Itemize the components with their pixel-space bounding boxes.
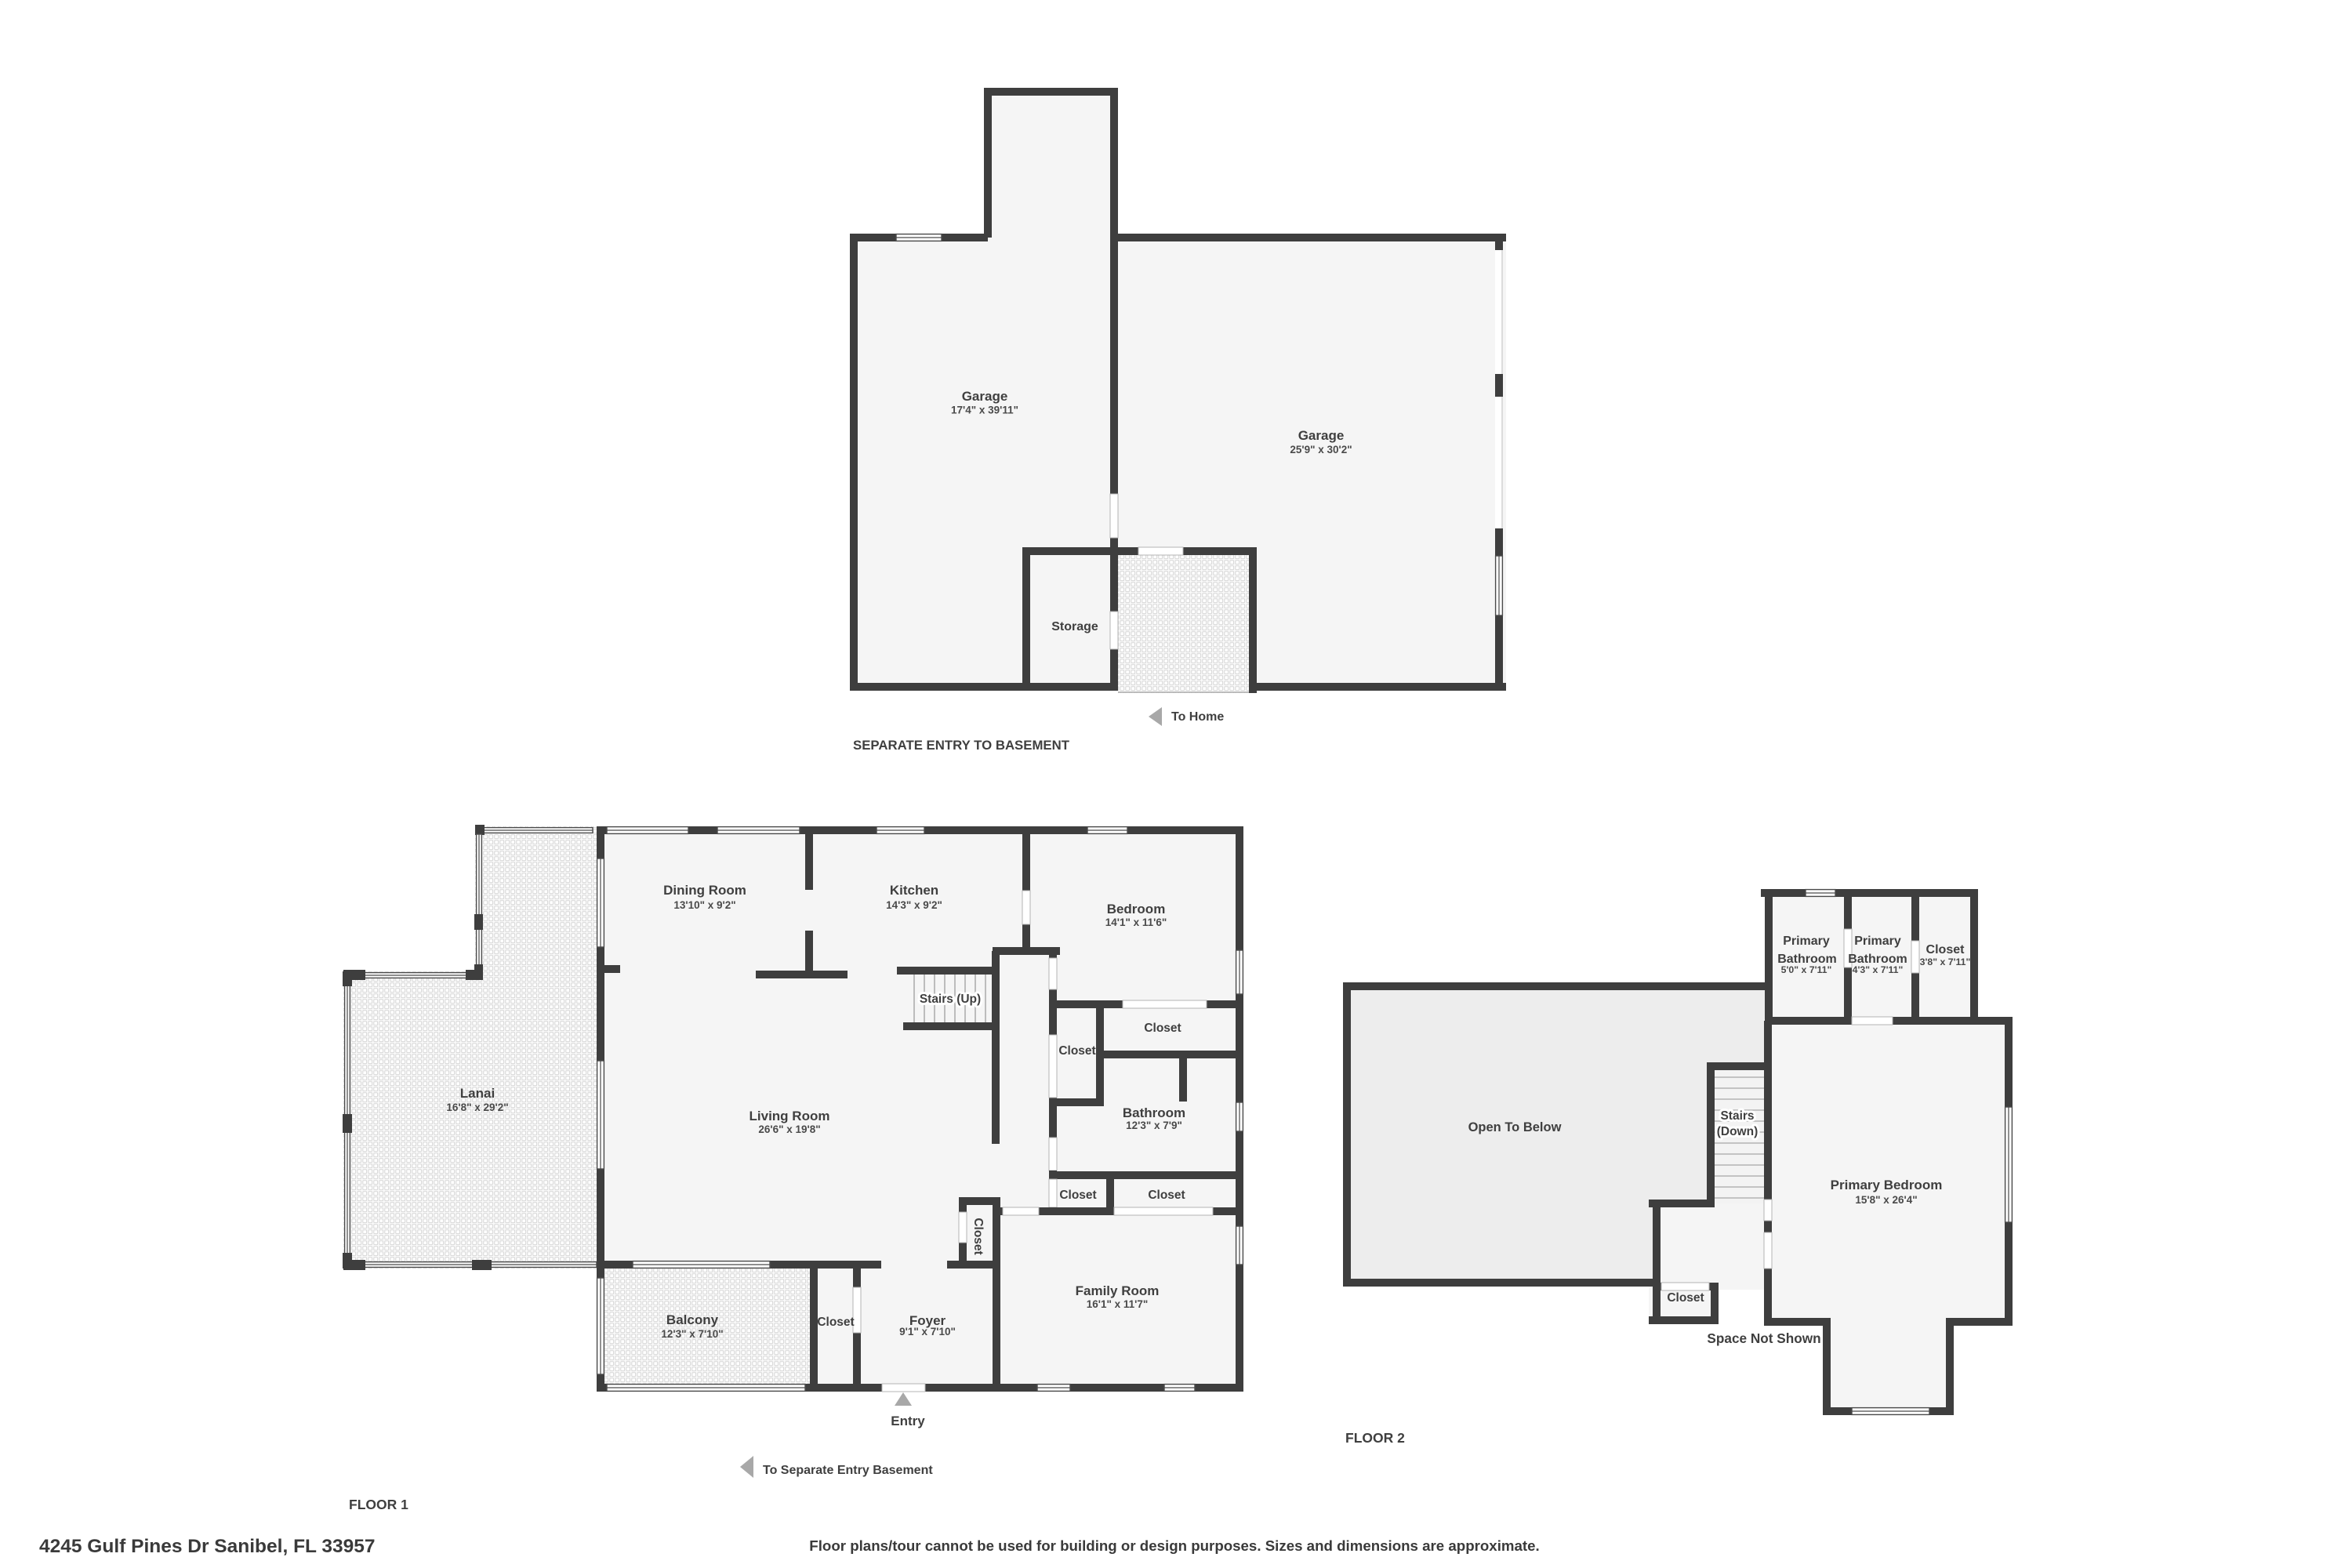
svg-text:Bathroom: Bathroom <box>1123 1105 1185 1120</box>
svg-text:Kitchen: Kitchen <box>890 883 938 898</box>
svg-text:Open To Below: Open To Below <box>1468 1120 1562 1134</box>
svg-text:14'1" x 11'6": 14'1" x 11'6" <box>1105 916 1167 928</box>
svg-text:Family Room: Family Room <box>1076 1283 1160 1298</box>
svg-text:5'0" x 7'11": 5'0" x 7'11" <box>1781 964 1832 975</box>
svg-text:16'1" x 11'7": 16'1" x 11'7" <box>1087 1298 1149 1310</box>
svg-text:To Separate Entry Basement: To Separate Entry Basement <box>763 1464 933 1477</box>
svg-text:Floor plans/tour cannot be use: Floor plans/tour cannot be used for buil… <box>809 1537 1539 1554</box>
svg-text:12'3" x 7'10": 12'3" x 7'10" <box>661 1328 723 1340</box>
svg-text:Closet: Closet <box>817 1316 854 1329</box>
svg-text:Closet: Closet <box>1667 1291 1704 1305</box>
svg-text:Balcony: Balcony <box>666 1312 719 1327</box>
svg-text:Storage: Storage <box>1051 620 1098 633</box>
svg-text:Bedroom: Bedroom <box>1107 902 1166 916</box>
svg-text:Garage: Garage <box>962 389 1008 404</box>
svg-text:Closet: Closet <box>1059 1189 1096 1202</box>
svg-text:Primary Bedroom: Primary Bedroom <box>1831 1178 1943 1192</box>
svg-text:(Down): (Down) <box>1717 1125 1759 1138</box>
svg-text:SEPARATE ENTRY TO BASEMENT: SEPARATE ENTRY TO BASEMENT <box>853 738 1070 753</box>
svg-text:FLOOR 1: FLOOR 1 <box>349 1497 408 1512</box>
svg-text:Primary: Primary <box>1854 935 1901 948</box>
svg-text:Closet: Closet <box>1148 1189 1185 1202</box>
svg-text:Entry: Entry <box>891 1414 925 1428</box>
svg-text:14'3" x 9'2": 14'3" x 9'2" <box>886 899 942 911</box>
svg-text:9'1" x 7'10": 9'1" x 7'10" <box>899 1326 956 1338</box>
svg-text:Stairs: Stairs <box>1720 1109 1754 1123</box>
svg-text:Closet: Closet <box>1058 1044 1095 1058</box>
svg-text:3'8" x 7'11": 3'8" x 7'11" <box>1920 956 1971 967</box>
svg-text:Stairs (Up): Stairs (Up) <box>920 993 981 1006</box>
svg-text:17'4" x 39'11": 17'4" x 39'11" <box>951 405 1018 416</box>
svg-text:4245 Gulf Pines Dr Sanibel, FL: 4245 Gulf Pines Dr Sanibel, FL 33957 <box>39 1536 376 1557</box>
svg-text:Lanai: Lanai <box>460 1086 495 1101</box>
svg-text:Living Room: Living Room <box>750 1109 830 1123</box>
svg-text:4'3" x 7'11": 4'3" x 7'11" <box>1853 964 1904 975</box>
svg-text:26'6" x 19'8": 26'6" x 19'8" <box>758 1123 820 1135</box>
svg-text:13'10" x 9'2": 13'10" x 9'2" <box>673 899 735 911</box>
svg-text:To Home: To Home <box>1171 710 1224 724</box>
svg-text:Primary: Primary <box>1783 935 1830 948</box>
svg-text:Garage: Garage <box>1298 428 1345 443</box>
svg-text:FLOOR 2: FLOOR 2 <box>1345 1430 1405 1446</box>
svg-text:16'8" x 29'2": 16'8" x 29'2" <box>446 1102 508 1113</box>
svg-text:15'8" x 26'4": 15'8" x 26'4" <box>1855 1194 1917 1206</box>
svg-text:Closet: Closet <box>1144 1022 1181 1035</box>
svg-text:Closet: Closet <box>971 1218 985 1254</box>
svg-text:25'9" x 30'2": 25'9" x 30'2" <box>1290 444 1352 456</box>
svg-text:Dining Room: Dining Room <box>663 883 746 898</box>
svg-text:Space Not Shown: Space Not Shown <box>1707 1330 1820 1346</box>
svg-text:12'3" x 7'9": 12'3" x 7'9" <box>1126 1120 1182 1131</box>
svg-text:Closet: Closet <box>1926 943 1965 956</box>
